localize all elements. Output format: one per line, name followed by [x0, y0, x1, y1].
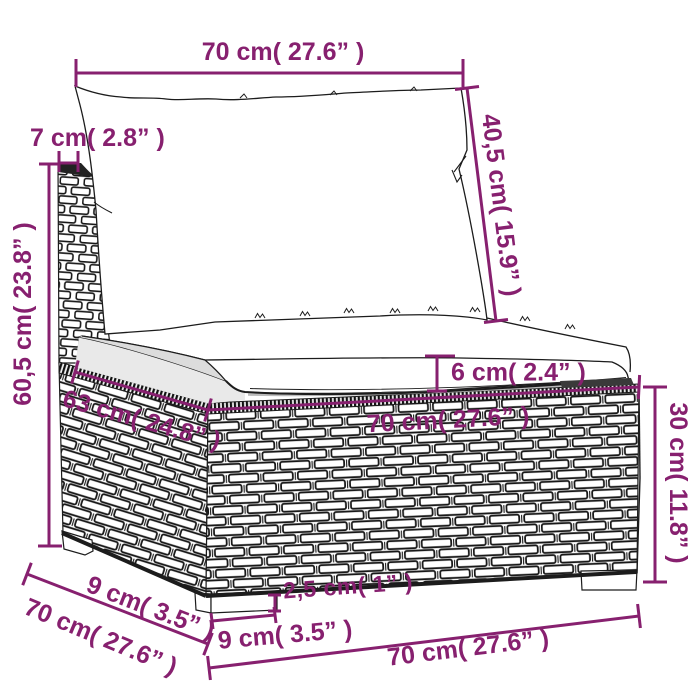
svg-text:70 cm( 27.6” ): 70 cm( 27.6” ) [202, 38, 365, 66]
svg-text:30 cm( 11.8” ): 30 cm( 11.8” ) [664, 402, 692, 563]
svg-text:6 cm( 2.4” ): 6 cm( 2.4” ) [451, 359, 586, 387]
svg-text:7 cm( 2.8” ): 7 cm( 2.8” ) [30, 124, 165, 152]
svg-text:60,5 cm( 23.8” ): 60,5 cm( 23.8” ) [9, 222, 37, 405]
